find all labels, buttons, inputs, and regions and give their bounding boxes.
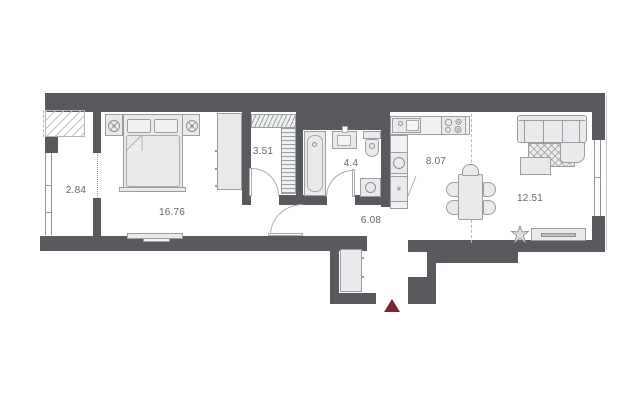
blanket-fold-icon <box>126 135 143 152</box>
closet-door-arc <box>252 168 279 196</box>
bedroom-tv-stand <box>143 238 170 242</box>
nightstand <box>182 114 200 136</box>
bed-pillow <box>154 119 178 133</box>
dining-chair <box>446 200 459 215</box>
wall-vestibule-bottom-left <box>330 293 376 304</box>
bathroom-door-arc <box>326 170 353 197</box>
dining-chair <box>446 182 459 197</box>
toilet-button <box>369 143 375 149</box>
wall-living-bottom-thick <box>408 240 518 252</box>
wall-vestibule-bottom-right <box>408 277 436 304</box>
sofa-arm-line <box>524 120 525 142</box>
bedroom-wardrobe <box>217 113 242 190</box>
sofa-cushion-line <box>543 120 544 142</box>
sofa-arm-line <box>579 120 580 142</box>
wall-right-bottom <box>592 216 605 252</box>
sofa-back-line <box>519 120 585 121</box>
nightstand <box>105 114 123 136</box>
bedroom-door-leaf <box>268 233 303 236</box>
room-label-kitchen: 8.07 <box>426 157 446 167</box>
wall-left-stub <box>45 137 58 153</box>
kitchen-faucet <box>398 121 403 126</box>
coffee-table <box>520 157 551 175</box>
living-window <box>594 140 601 216</box>
balcony-zone-divider <box>97 153 98 198</box>
bed-footboard <box>119 187 186 192</box>
room-label-living: 12.51 <box>517 194 543 204</box>
closet-rail-top <box>251 114 296 128</box>
wall-closet-bathroom <box>296 112 303 195</box>
dishwasher-door <box>393 157 405 169</box>
dining-chair <box>483 200 496 215</box>
wall-vestibule-left <box>330 250 339 293</box>
bathtub-drain <box>312 142 317 147</box>
sofa-cushion-line <box>562 120 563 142</box>
wall-top <box>45 93 605 112</box>
dining-chair <box>483 182 496 197</box>
living-window-tick <box>594 177 601 178</box>
room-label-bathroom: 4.4 <box>344 159 359 169</box>
balcony-window-tick <box>45 212 52 213</box>
bedroom-door-arc <box>270 204 303 235</box>
shaft-hatch <box>45 110 85 137</box>
hatch-dashed-edge <box>43 110 44 137</box>
burners-icon <box>442 117 465 134</box>
toilet-tank <box>363 131 381 139</box>
washing-machine-drum <box>365 182 376 193</box>
entrance-arrow-icon <box>384 299 400 312</box>
floor-plan: * 2.84 16.76 3.51 4.4 6.08 8.07 12.51 <box>0 0 640 400</box>
lamp-icon <box>106 118 122 134</box>
balcony-window-tick <box>45 185 52 186</box>
facade-line <box>606 96 607 250</box>
wardrobe-handle <box>215 185 218 187</box>
bathroom-door-leaf <box>352 169 355 197</box>
wall-right-top <box>592 112 605 140</box>
plant-icon <box>510 225 530 245</box>
wall-bottom-left <box>40 236 367 251</box>
vestibule-wardrobe-handle <box>361 257 364 259</box>
room-label-balcony: 2.84 <box>66 186 86 196</box>
wall-bathroom-kitchen <box>381 112 390 207</box>
wall-balcony-bedroom-stub <box>93 198 101 236</box>
sofa-chaise <box>560 142 585 163</box>
bed-pillow <box>127 119 151 133</box>
dining-table <box>458 174 483 220</box>
wall-living-bottom-thick2 <box>427 252 518 263</box>
wardrobe-handle <box>215 150 218 152</box>
closet-rail-right <box>281 128 296 194</box>
balcony-window <box>45 153 52 235</box>
fridge-icon: * <box>397 185 402 197</box>
closet-door-leaf <box>249 168 252 196</box>
vestibule-wardrobe-handle <box>361 276 364 278</box>
stove <box>441 116 466 135</box>
bathroom-sink-basin <box>337 135 351 146</box>
bathroom-faucet <box>342 126 348 133</box>
wall-balcony-bedroom-upper <box>93 112 101 153</box>
room-label-bedroom: 16.76 <box>159 208 185 218</box>
room-label-closet: 3.51 <box>253 147 273 157</box>
dining-chair <box>462 164 479 176</box>
kitchen-door-leaf-line <box>407 175 417 197</box>
room-label-hallway: 6.08 <box>361 216 381 226</box>
wardrobe-handle <box>215 168 218 170</box>
wall-bathroom-bottom-left <box>303 195 327 205</box>
living-tv-screen <box>541 233 576 237</box>
kitchen-sink-basin <box>406 120 419 131</box>
lamp-icon <box>184 118 200 134</box>
vestibule-wardrobe <box>340 249 362 292</box>
